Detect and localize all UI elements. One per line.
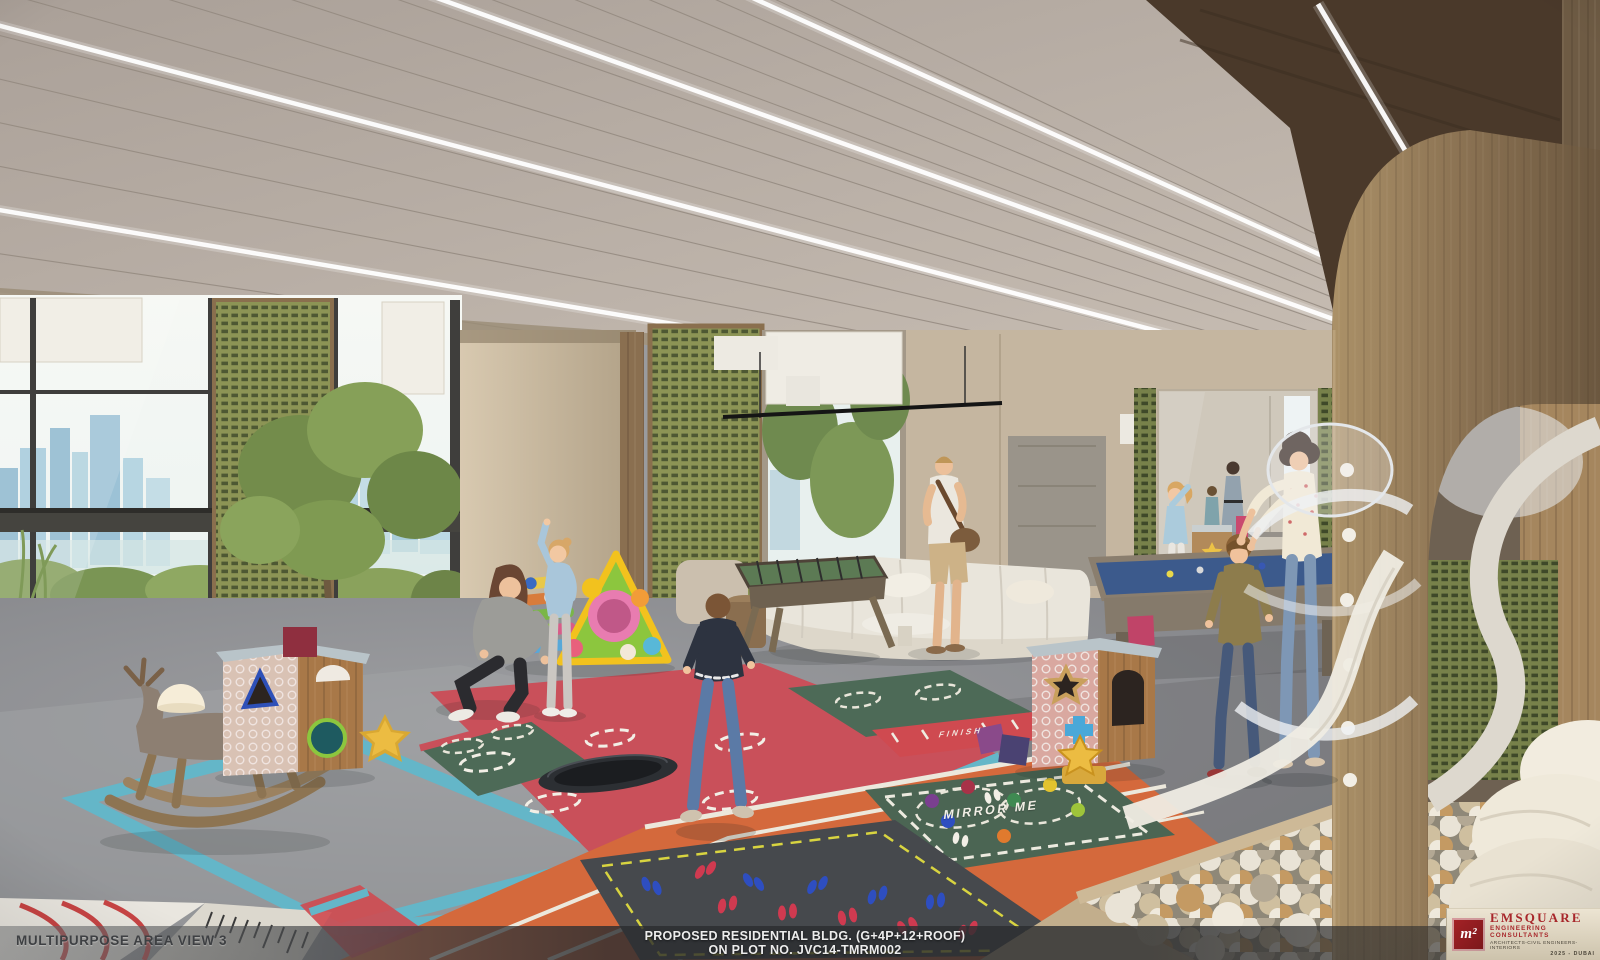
consultant-logo-plate: m² EMSQUARE ENGINEERING CONSULTANTS ARCH… [1446, 908, 1600, 960]
logo-tagline: ENGINEERING CONSULTANTS [1490, 926, 1595, 939]
logo-disciplines: ARCHITECTS-CIVIL ENGINEERS-INTERIORS [1490, 941, 1595, 951]
project-caption: PROPOSED RESIDENTIAL BLDG. (G+4P+12+ROOF… [5, 929, 1600, 957]
vignette [0, 0, 1600, 960]
rendering-viewport: MIRROR ME FINISH MULTIPURPOSE AREA VIEW … [0, 0, 1600, 960]
logo-year-city: 2025 - DUBAI [1490, 952, 1595, 957]
project-caption-line1: PROPOSED RESIDENTIAL BLDG. (G+4P+12+ROOF… [5, 929, 1600, 943]
logo-text-block: EMSQUARE ENGINEERING CONSULTANTS ARCHITE… [1490, 911, 1595, 957]
logo-mark-icon: m² [1452, 918, 1485, 951]
project-caption-line2: ON PLOT NO. JVC14-TMRM002 [5, 943, 1600, 957]
logo-company-name: EMSQUARE [1490, 911, 1595, 925]
render-scene [0, 0, 1600, 960]
